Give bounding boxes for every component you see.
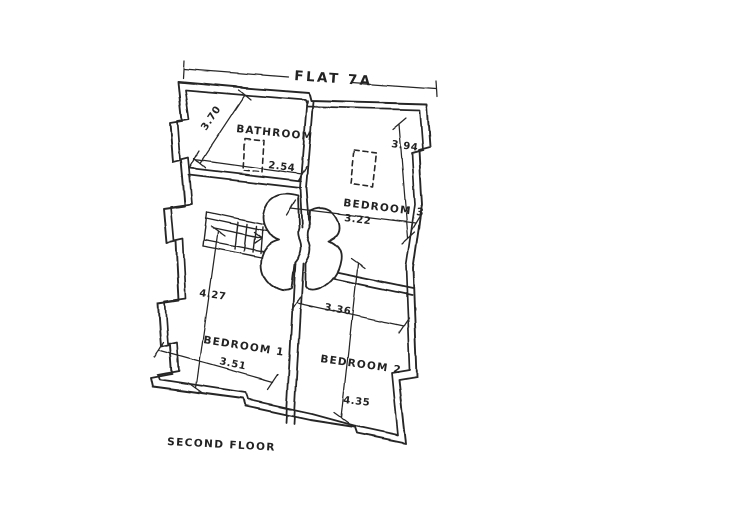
floor-plan-canvas: FLAT 7A BATHROOM BEDROOM 3 BEDROOM 1 BED… [0,0,750,530]
dim-line-bedroom1-width [158,350,273,382]
stair-tread-4 [261,227,263,253]
plan-title: FLAT 7A [294,68,373,89]
dim-text-bathroom-width: 2.54 [268,160,296,174]
dim-text-bedroom1-width: 3.51 [218,356,247,372]
dim-text-bedroom1-length: 4.27 [199,288,227,303]
room-label-bedroom-1: BEDROOM 1 [203,334,286,359]
wall-bathroom-bedroom3-b [306,102,313,227]
room-label-bedroom-2: BEDROOM 2 [320,353,403,376]
dim-text-bedroom3-width: 3.22 [344,213,372,227]
staircase-group [203,212,268,258]
dim-line-bedroom1-length [196,231,218,388]
stair-bottom-edge-b [203,246,265,258]
dim-text-bathroom-length: 3.70 [199,104,223,133]
dim-text-bedroom3-length: 3.94 [391,139,419,154]
stair-tread-2 [244,224,247,251]
floor-plan-sketch-page: FLAT 7A BATHROOM BEDROOM 3 BEDROOM 1 BED… [0,0,750,530]
wall-bathroom-south-b [189,175,301,188]
room-label-bathroom: BATHROOM [236,123,314,143]
bedroom3-dashed-fixture [350,150,377,187]
wall-bedroom1-bedroom2-b [294,263,303,424]
floor-title: SECOND FLOOR [167,436,276,454]
dim-text-bedroom2-length: 4.35 [343,395,371,409]
stair-tread-3 [253,226,256,252]
stair-tread-1 [235,222,238,249]
dim-text-bedroom2-width: 3.36 [323,302,352,318]
